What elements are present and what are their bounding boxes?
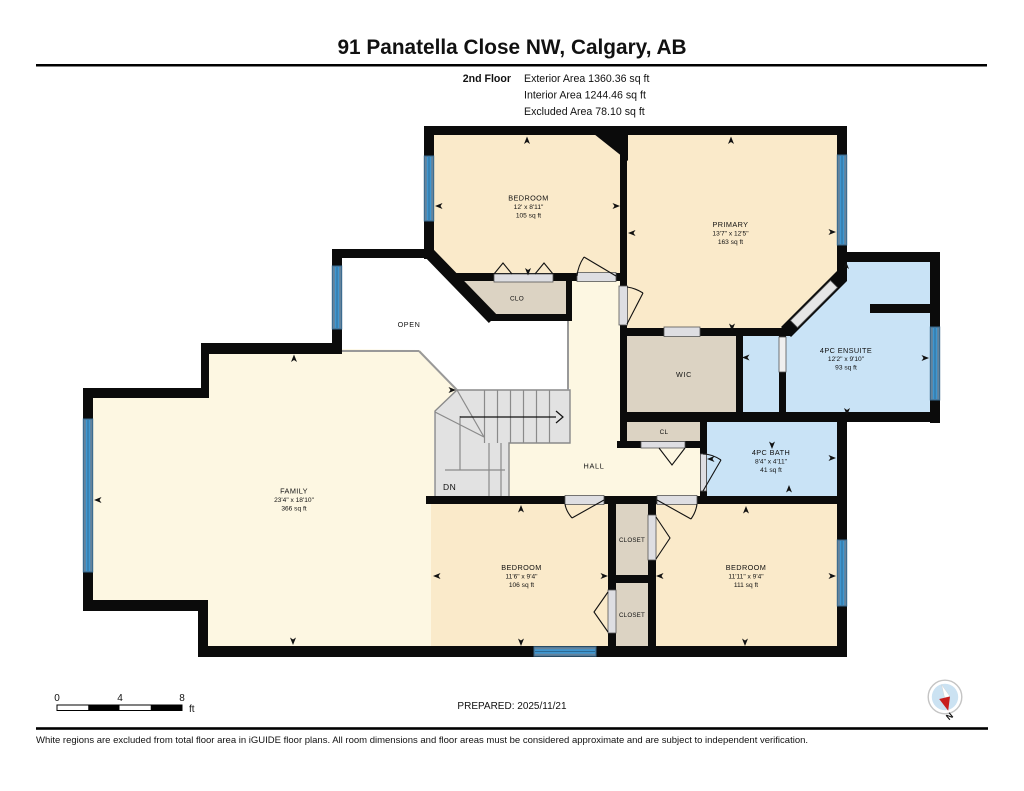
svg-text:2nd Floor: 2nd Floor (463, 73, 511, 85)
svg-text:White regions are excluded fro: White regions are excluded from total fl… (36, 735, 808, 746)
svg-text:Excluded Area 78.10 sq ft: Excluded Area 78.10 sq ft (524, 106, 645, 118)
svg-text:PRIMARY: PRIMARY (713, 220, 749, 229)
svg-text:4PC BATH: 4PC BATH (752, 448, 790, 457)
svg-text:12' x 8'11": 12' x 8'11" (514, 204, 544, 211)
svg-text:8: 8 (179, 693, 185, 704)
svg-text:4PC ENSUITE: 4PC ENSUITE (820, 346, 872, 355)
svg-text:8'4" x 4'11": 8'4" x 4'11" (755, 459, 788, 466)
svg-text:HALL: HALL (583, 462, 604, 471)
svg-text:FAMILY: FAMILY (280, 487, 308, 496)
svg-text:0: 0 (54, 693, 60, 704)
svg-text:4: 4 (117, 693, 123, 704)
svg-text:ft: ft (189, 704, 195, 715)
svg-text:91 Panatella Close NW, Calgary: 91 Panatella Close NW, Calgary, AB (337, 36, 686, 59)
svg-text:11'11" x 9'4": 11'11" x 9'4" (728, 574, 764, 581)
svg-text:111 sq ft: 111 sq ft (734, 582, 758, 589)
svg-text:41 sq ft: 41 sq ft (760, 467, 782, 474)
svg-text:CL: CL (660, 429, 669, 436)
svg-text:WIC: WIC (676, 370, 692, 379)
svg-text:CLOSET: CLOSET (619, 612, 645, 619)
svg-text:CLOSET: CLOSET (619, 537, 645, 544)
svg-text:106 sq ft: 106 sq ft (509, 582, 534, 589)
svg-text:163 sq ft: 163 sq ft (718, 239, 743, 246)
svg-text:23'4" x 18'10": 23'4" x 18'10" (274, 497, 314, 504)
svg-text:366 sq ft: 366 sq ft (281, 506, 306, 513)
svg-text:BEDROOM: BEDROOM (508, 194, 549, 203)
svg-text:BEDROOM: BEDROOM (726, 563, 767, 572)
svg-text:CLO: CLO (510, 296, 524, 303)
svg-text:OPEN: OPEN (398, 320, 421, 329)
svg-text:Interior Area 1244.46 sq ft: Interior Area 1244.46 sq ft (524, 90, 646, 102)
svg-text:105 sq ft: 105 sq ft (516, 213, 541, 220)
svg-text:12'2" x 9'10": 12'2" x 9'10" (828, 356, 865, 363)
svg-text:93 sq ft: 93 sq ft (835, 365, 857, 372)
svg-text:11'6" x 9'4": 11'6" x 9'4" (505, 574, 538, 581)
svg-text:13'7" x 12'5": 13'7" x 12'5" (712, 231, 749, 238)
svg-text:PREPARED: 2025/11/21: PREPARED: 2025/11/21 (457, 701, 567, 712)
svg-text:BEDROOM: BEDROOM (501, 563, 542, 572)
svg-text:Exterior Area 1360.36 sq ft: Exterior Area 1360.36 sq ft (524, 73, 649, 85)
svg-text:DN: DN (443, 482, 456, 492)
